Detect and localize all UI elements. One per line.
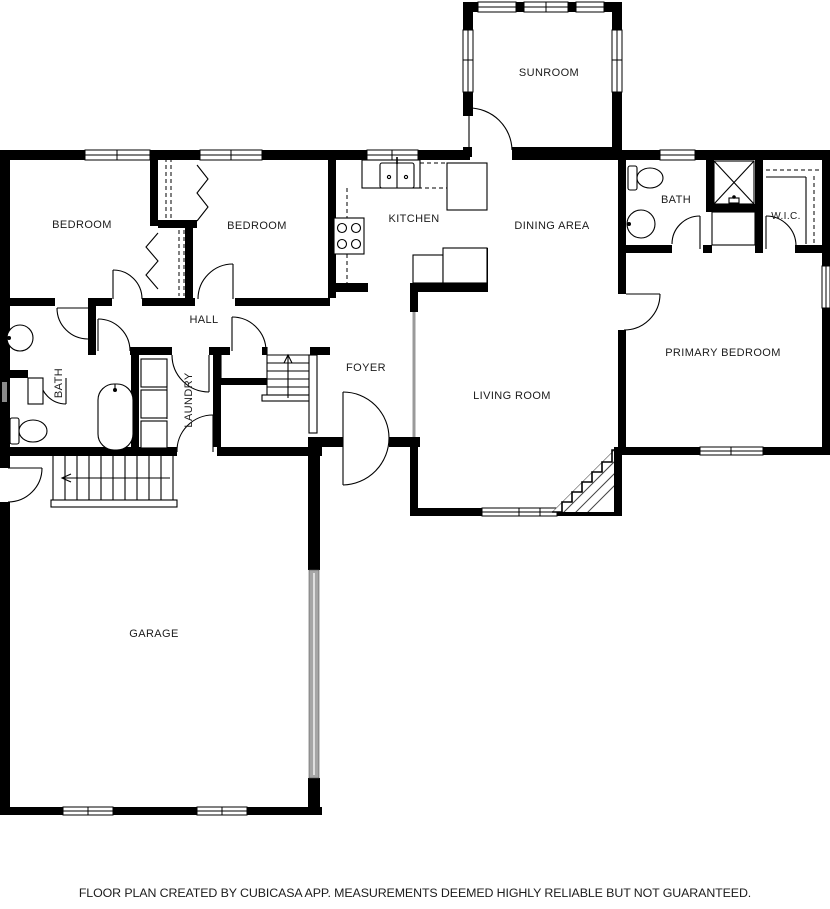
garage-door (309, 570, 319, 778)
floor-plan-page: SUNROOM BEDROOM BEDROOM KITCHEN DINING A… (0, 0, 830, 909)
bathroom-sink (7, 325, 33, 351)
room-label-kitchen: KITCHEN (388, 213, 439, 225)
shower (714, 161, 754, 204)
door-swing-bedroom-middle (198, 264, 233, 299)
door-swing-hall-closet (232, 317, 266, 351)
door-swing-bedroom-left (113, 270, 142, 299)
window (700, 447, 763, 455)
room-label-dining-area: DINING AREA (514, 220, 590, 232)
room-label-bedroom-middle: BEDROOM (227, 220, 287, 232)
bath-lower-fixtures (2, 325, 133, 450)
stove (334, 218, 364, 254)
door-swing-ensuite (57, 308, 88, 339)
room-label-laundry: LAUNDRY (183, 372, 195, 427)
door-swing-sunroom (469, 108, 512, 150)
window (367, 150, 418, 160)
door-swing-front-entry (343, 392, 389, 485)
window (612, 30, 622, 92)
room-label-hall: HALL (189, 314, 218, 326)
window (822, 266, 830, 308)
room-label-garage: GARAGE (129, 628, 178, 640)
toilet (628, 166, 663, 190)
door-swing-bath-lower (98, 319, 130, 351)
window (85, 150, 150, 160)
bathroom-sink (627, 210, 655, 238)
refrigerator (447, 163, 487, 210)
kitchen-island (413, 248, 487, 283)
door-swing-garage-side (8, 468, 42, 502)
stairs-foyer (221, 347, 317, 433)
room-label-sunroom: SUNROOM (519, 67, 579, 79)
room-label-bath-upper: BATH (661, 194, 691, 206)
room-label-bedroom-left: BEDROOM (52, 219, 112, 231)
door-swing-bath-upper (672, 216, 700, 249)
window (63, 807, 113, 815)
room-label-wic: W.I.C. (771, 211, 801, 222)
floor-plan-drawing: SUNROOM BEDROOM BEDROOM KITCHEN DINING A… (0, 0, 830, 909)
room-label-living-room: LIVING ROOM (473, 390, 551, 402)
stairs-up-arrow-icon (284, 355, 292, 398)
bathtub (98, 384, 133, 450)
closet-bifold-door (197, 165, 208, 221)
window (200, 150, 262, 160)
stairs-direction-arrow-icon (62, 474, 170, 482)
door-swing-primary-bedroom (624, 294, 660, 330)
disclaimer-text: FLOOR PLAN CREATED BY CUBICASA APP. MEAS… (0, 886, 830, 900)
window (524, 2, 568, 12)
closet-bifold-door (146, 233, 158, 289)
window (197, 807, 247, 815)
windows (63, 2, 830, 815)
stairs-garage (51, 456, 177, 507)
window (478, 2, 516, 12)
room-label-primary-bedroom: PRIMARY BEDROOM (665, 347, 781, 359)
room-label-bath-lower: BATH (53, 368, 65, 398)
window (660, 150, 695, 160)
window (482, 508, 557, 516)
laundry-fixtures (141, 359, 167, 448)
window (576, 2, 604, 12)
room-label-foyer: FOYER (346, 362, 386, 374)
window (463, 30, 473, 92)
toilet (10, 418, 47, 444)
wic-cabinet (712, 212, 755, 245)
washer-dryer (141, 359, 167, 448)
